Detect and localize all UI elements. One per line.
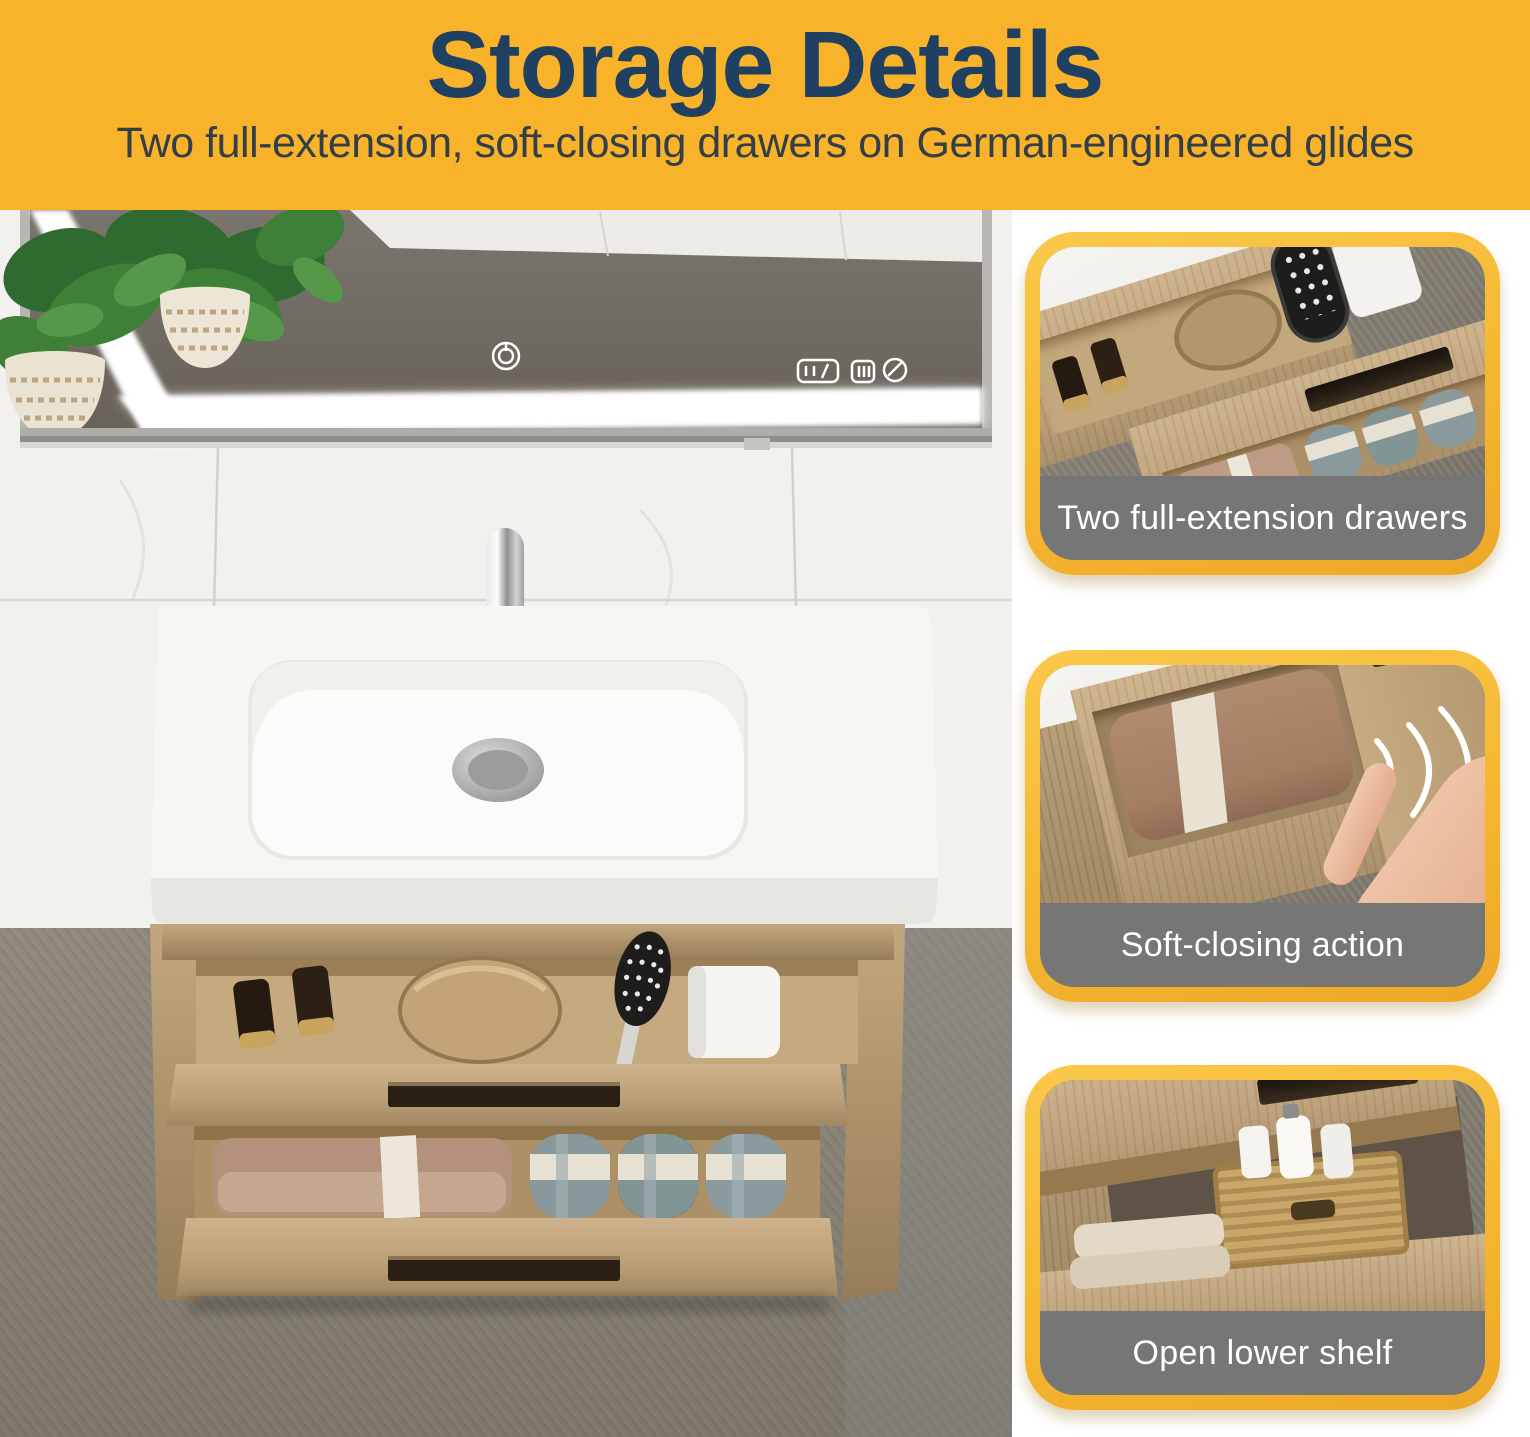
led-mirror	[0, 210, 992, 450]
feature-card-shelf: Open lower shelf	[1025, 1065, 1500, 1410]
rolled-brown-towel	[1104, 665, 1359, 846]
rolled-gray-towels	[530, 1134, 786, 1218]
basket-handle-hole	[1290, 1199, 1335, 1221]
card-photo-drawers	[1040, 247, 1485, 476]
mirror-bottom-frame	[20, 428, 992, 450]
drawer-handle-slot	[388, 1084, 620, 1107]
toiletry-bottle	[1275, 1115, 1314, 1180]
header-band: Storage Details Two full-extension, soft…	[0, 0, 1530, 210]
sink-basin	[248, 660, 748, 860]
feature-card-soft-close: Soft-closing action	[1025, 650, 1500, 1002]
vanity-scene	[0, 210, 1012, 1437]
card-photo-soft-close	[1040, 665, 1485, 903]
cabinet-shadow	[190, 1296, 830, 1312]
card-caption: Soft-closing action	[1040, 903, 1485, 987]
towel-stripe	[1171, 692, 1227, 833]
drawer-handle-slot	[1257, 1080, 1419, 1105]
second-drawer-interior	[194, 1126, 820, 1219]
card-photo-shelf	[1040, 1080, 1485, 1311]
vanity-cabinet	[150, 924, 905, 1312]
folded-brown-towels	[212, 1135, 512, 1219]
page-subtitle: Two full-extension, soft-closing drawers…	[116, 119, 1413, 168]
pump-head	[1282, 1104, 1299, 1119]
top-drawer-front	[166, 1064, 848, 1126]
feature-card-drawers: Two full-extension drawers	[1025, 232, 1500, 575]
product-infographic-page: { "header": { "title": "Storage Details"…	[0, 0, 1530, 1437]
round-wood-box	[400, 958, 560, 1062]
card-caption: Two full-extension drawers	[1040, 476, 1485, 560]
drawer-handle-slot	[388, 1258, 620, 1281]
countertop	[151, 606, 938, 924]
main-vanity-photo	[0, 210, 1012, 1437]
second-drawer-front	[176, 1218, 838, 1296]
card-caption: Open lower shelf	[1040, 1311, 1485, 1395]
toiletry-bottle	[1238, 1125, 1272, 1179]
towel-ribbon	[380, 1135, 420, 1219]
drawer-handle-slot	[1367, 665, 1485, 668]
counter-front-edge	[151, 878, 938, 924]
toiletry-bottle	[1320, 1123, 1355, 1179]
page-title: Storage Details	[427, 6, 1104, 125]
